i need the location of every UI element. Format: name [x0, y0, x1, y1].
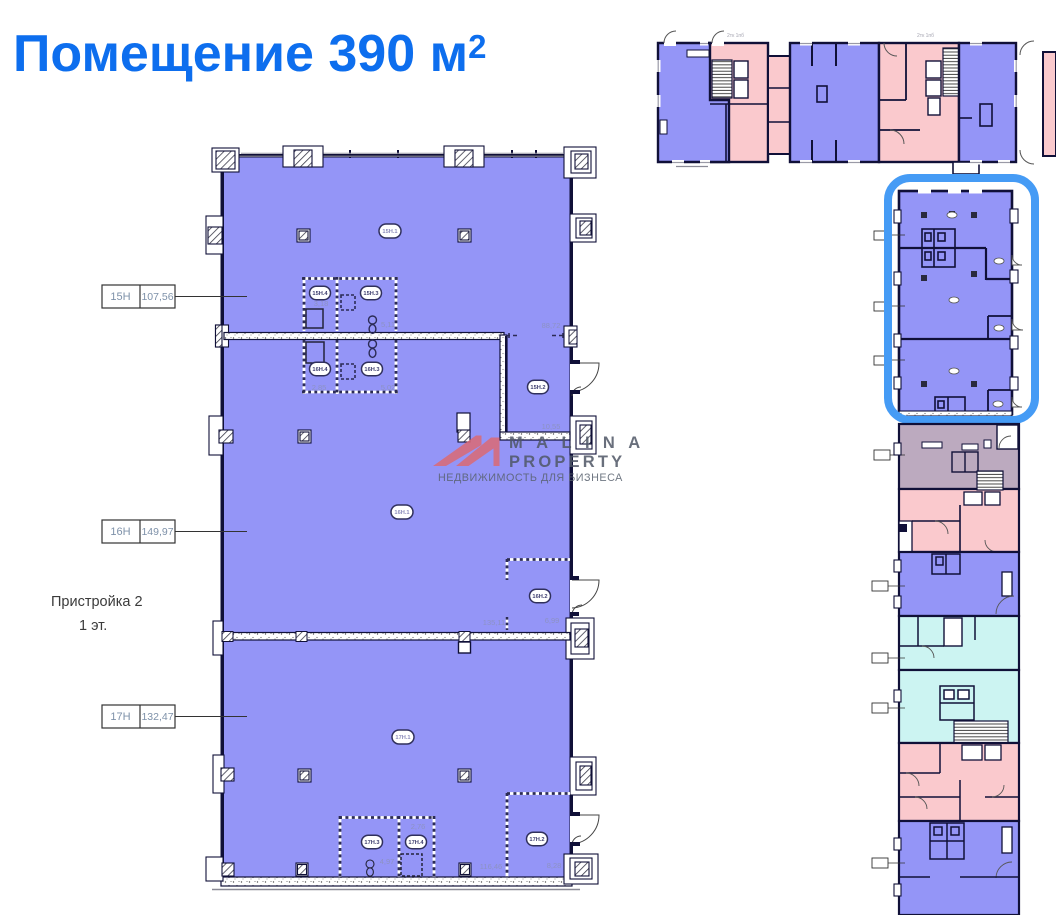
svg-text:15Н.4: 15Н.4 [312, 291, 328, 297]
svg-text:15Н.3: 15Н.3 [363, 291, 378, 297]
svg-text:17Н.3: 17Н.3 [364, 840, 379, 846]
svg-text:16Н.2: 16Н.2 [532, 594, 547, 600]
svg-text:8,28: 8,28 [547, 861, 562, 870]
svg-text:17Н.4: 17Н.4 [408, 840, 424, 846]
svg-text:149,97: 149,97 [141, 526, 173, 538]
svg-text:6,99: 6,99 [545, 616, 560, 625]
svg-text:НЕДВИЖИМОСТЬ ДЛЯ БИЗНЕСА: НЕДВИЖИМОСТЬ ДЛЯ БИЗНЕСА [438, 472, 623, 484]
svg-text:4,97: 4,97 [380, 857, 395, 866]
svg-text:17Н.2: 17Н.2 [529, 837, 544, 843]
svg-text:5,11: 5,11 [381, 320, 395, 329]
svg-text:135,11: 135,11 [483, 618, 505, 627]
svg-text:2тк 1пб: 2тк 1пб [727, 33, 744, 39]
svg-text:17Н.1: 17Н.1 [395, 735, 410, 741]
svg-text:15Н.1: 15Н.1 [382, 229, 397, 235]
svg-text:1 эт.: 1 эт. [79, 618, 107, 634]
svg-text:15Н: 15Н [110, 291, 130, 303]
svg-text:16Н.4: 16Н.4 [312, 367, 328, 373]
svg-text:107,56: 107,56 [141, 291, 173, 303]
svg-text:16Н: 16Н [110, 526, 130, 538]
svg-text:2,85: 2,85 [312, 383, 327, 392]
svg-text:MALINA: MALINA [509, 434, 654, 452]
svg-text:2тк 1пб: 2тк 1пб [917, 33, 934, 39]
svg-text:Пристройка 2: Пристройка 2 [51, 594, 143, 610]
svg-text:16Н.3: 16Н.3 [364, 367, 379, 373]
svg-text:5,02: 5,02 [381, 383, 396, 392]
svg-text:116,46: 116,46 [480, 862, 502, 871]
svg-text:88,72: 88,72 [542, 321, 561, 330]
svg-text:10,55: 10,55 [542, 422, 561, 431]
svg-text:132,47: 132,47 [141, 711, 173, 723]
svg-text:3,18: 3,18 [314, 299, 329, 308]
svg-text:PROPERTY: PROPERTY [509, 453, 625, 471]
svg-text:15Н.2: 15Н.2 [530, 385, 545, 391]
svg-text:16Н.1: 16Н.1 [394, 510, 409, 516]
svg-text:17Н: 17Н [110, 711, 130, 723]
svg-text:2,76: 2,76 [411, 822, 426, 831]
